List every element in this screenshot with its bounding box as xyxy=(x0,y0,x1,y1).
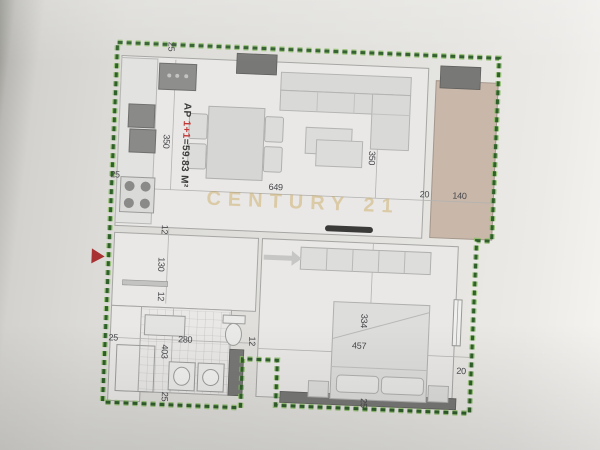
toilet-icon xyxy=(225,323,242,346)
dimension-label: 20 xyxy=(456,366,466,376)
dining-table xyxy=(206,106,265,180)
dimension-label: 25 xyxy=(166,42,176,52)
photo-background: CENTURY 21 AP 1+1=59.83 M² 2525350649350… xyxy=(0,0,600,450)
sofa-chaise xyxy=(370,94,410,151)
dimension-label: 350 xyxy=(161,134,172,149)
dimension-label: 12 xyxy=(156,291,166,301)
dimension-label: 25 xyxy=(110,169,120,179)
dimension-label: 12 xyxy=(160,225,170,235)
dimension-label: 334 xyxy=(359,314,370,329)
chair xyxy=(265,117,284,143)
pillow xyxy=(381,377,424,396)
bathroom-sink-basin xyxy=(173,367,190,386)
floor-plan-drawing xyxy=(89,27,505,428)
dimension-label: 649 xyxy=(268,182,283,193)
apartment-label-unit: 1+1 xyxy=(180,120,192,139)
chair xyxy=(263,147,282,173)
nightstand xyxy=(428,386,449,403)
stove-icon xyxy=(120,177,155,213)
floor-plan: CENTURY 21 AP 1+1=59.83 M² 2525350649350… xyxy=(89,27,505,428)
dimension-label: 12 xyxy=(247,336,257,346)
dimension-label: 457 xyxy=(352,340,367,351)
column-top xyxy=(236,53,277,75)
hallway xyxy=(112,232,259,311)
dimension-label: 20 xyxy=(420,189,430,199)
dimension-label: 25 xyxy=(108,332,118,342)
dimension-label: 130 xyxy=(156,257,167,272)
dimension-label: 140 xyxy=(452,190,467,201)
vanity xyxy=(144,315,185,337)
dimension-label: 350 xyxy=(367,151,378,166)
column-top-right xyxy=(440,66,481,90)
dimension-label: 25 xyxy=(359,398,369,408)
coffee-table xyxy=(316,140,363,168)
fridge-icon xyxy=(128,104,155,128)
balcony xyxy=(430,81,499,240)
dimension-label: 25 xyxy=(160,392,170,402)
apartment-label-area: =59.83 M² xyxy=(178,139,191,188)
dimension-label: 280 xyxy=(178,334,193,345)
washing-machine-drum xyxy=(202,369,219,386)
dimension-label: 403 xyxy=(159,344,170,359)
entry-arrow-icon xyxy=(91,248,105,264)
appliance-icon xyxy=(129,129,156,153)
nightstand xyxy=(308,381,329,398)
toilet-tank xyxy=(223,315,245,324)
pillow xyxy=(336,375,379,394)
apartment-label-prefix: AP xyxy=(181,103,193,121)
